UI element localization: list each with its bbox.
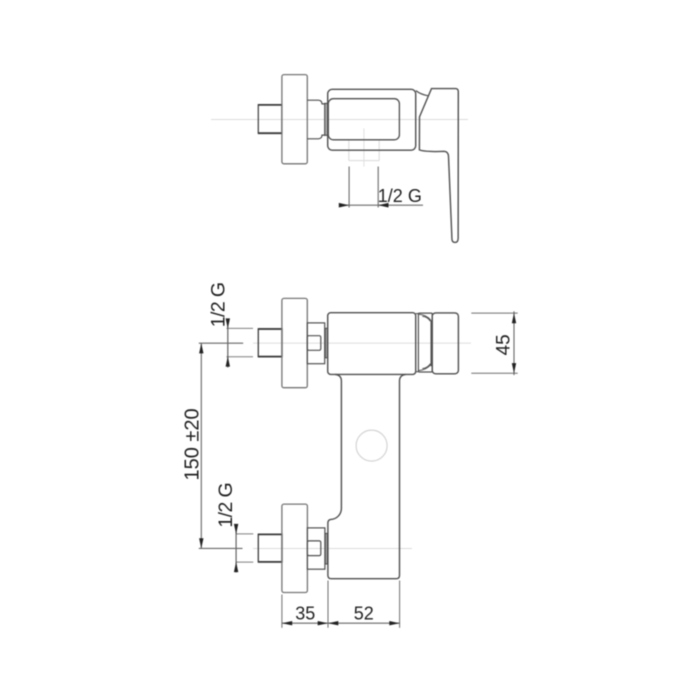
svg-text:35: 35 [295,604,315,624]
svg-text:1/2 G: 1/2 G [207,282,229,327]
svg-text:150 ±20: 150 ±20 [181,408,203,480]
svg-text:45: 45 [493,334,514,355]
svg-text:52: 52 [354,604,374,624]
svg-text:1/2 G: 1/2 G [215,483,237,528]
svg-text:1/2 G: 1/2 G [378,186,422,206]
